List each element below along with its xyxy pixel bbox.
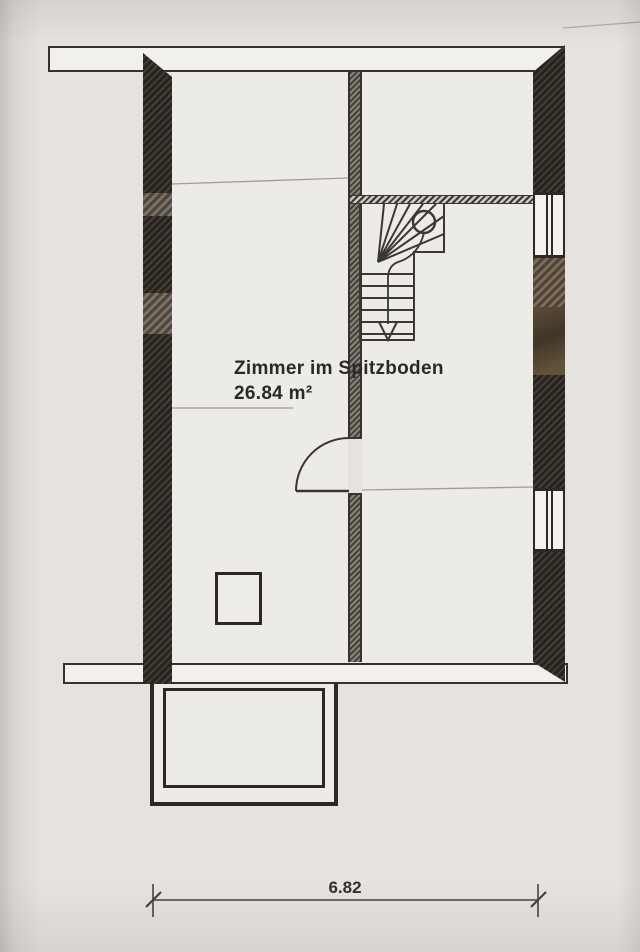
- window-lower: [533, 488, 565, 552]
- partition-wall-lower: [348, 495, 362, 662]
- wall-right-smudge: [533, 307, 565, 375]
- wall-right: [533, 45, 565, 684]
- wall-top: [48, 46, 565, 72]
- wall-right-solid-bottom: [533, 552, 565, 684]
- partition-wall-upper: [348, 72, 362, 438]
- room-label: Zimmer im Spitzboden: [234, 357, 444, 381]
- window-upper: [533, 192, 565, 258]
- paper-edge-line: [563, 22, 640, 28]
- room-area-label: 26.84 m²: [234, 382, 312, 406]
- window-mullion: [546, 491, 553, 549]
- wall-left-light-patch: [143, 193, 172, 216]
- wall-bottom: [63, 663, 568, 684]
- dimension-value: 6.82: [300, 878, 390, 898]
- window-mullion: [546, 195, 553, 255]
- wall-left-light-patch: [143, 293, 172, 334]
- square-object: [215, 572, 262, 625]
- wall-right-brown-segment: [533, 258, 565, 307]
- wall-left: [143, 53, 172, 684]
- floor-plan-page: Zimmer im Spitzboden 26.84 m² 6.82: [0, 0, 640, 952]
- protrusion-inner: [163, 688, 325, 788]
- stair-landing-wall-band: [350, 195, 533, 204]
- wall-right-solid-mid: [533, 375, 565, 488]
